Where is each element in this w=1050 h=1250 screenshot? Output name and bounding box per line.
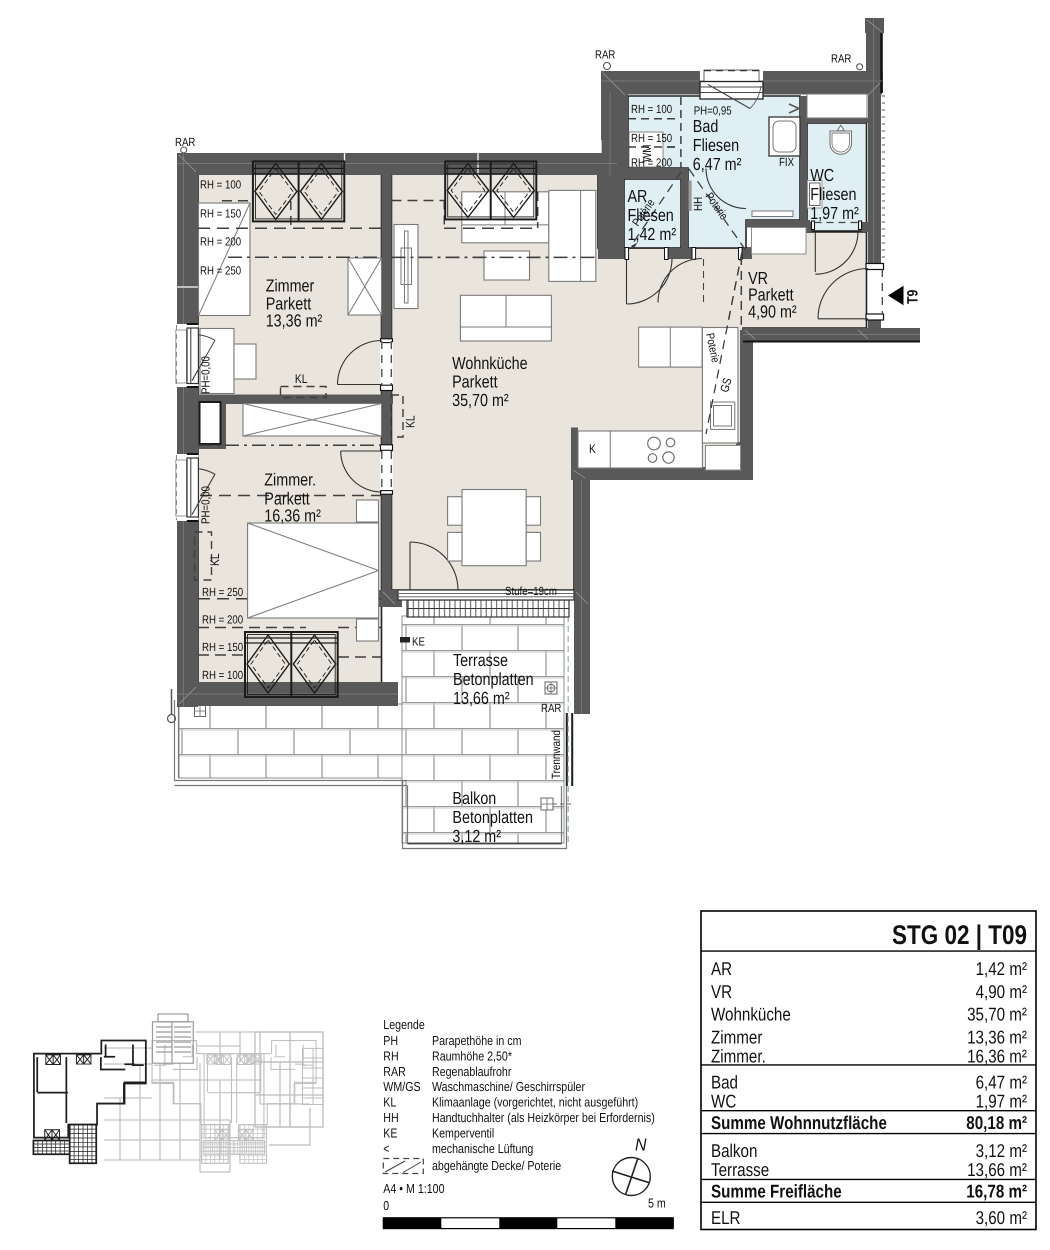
svg-text:VR: VR: [711, 981, 732, 1002]
svg-text:Wohnküche: Wohnküche: [711, 1004, 791, 1025]
svg-text:RH = 200: RH = 200: [200, 235, 241, 249]
svg-text:PH=0,00: PH=0,00: [199, 486, 213, 524]
svg-text:abgehängte Decke/ Poterie: abgehängte Decke/ Poterie: [432, 1158, 561, 1173]
svg-text:AR: AR: [711, 958, 732, 979]
svg-text:16,36 m²: 16,36 m²: [967, 1046, 1027, 1067]
svg-text:Waschmaschine/ Geschirrspüler: Waschmaschine/ Geschirrspüler: [432, 1079, 586, 1094]
svg-text:ELR: ELR: [711, 1207, 741, 1228]
svg-text:4,90 m²: 4,90 m²: [976, 981, 1027, 1002]
svg-text:80,18 m²: 80,18 m²: [966, 1112, 1027, 1133]
svg-text:RH = 250: RH = 250: [202, 585, 243, 599]
svg-text:RH = 200: RH = 200: [202, 613, 243, 627]
svg-text:Balkon: Balkon: [452, 788, 496, 808]
svg-text:PH=0,00: PH=0,00: [199, 356, 213, 394]
svg-text:13,66 m²: 13,66 m²: [453, 688, 510, 708]
svg-text:KL: KL: [383, 1095, 396, 1110]
svg-text:HH: HH: [691, 197, 705, 211]
svg-text:Zimmer: Zimmer: [711, 1026, 762, 1047]
svg-text:Balkon: Balkon: [711, 1140, 757, 1161]
svg-text:13,36 m²: 13,36 m²: [266, 311, 323, 331]
svg-text:Fliesen: Fliesen: [693, 135, 739, 155]
svg-text:RAR: RAR: [831, 52, 851, 66]
svg-text:Betonplatten: Betonplatten: [453, 669, 534, 689]
svg-text:Terrasse: Terrasse: [711, 1159, 769, 1180]
svg-text:K: K: [589, 442, 596, 456]
svg-text:RH: RH: [383, 1048, 398, 1063]
svg-text:Bad: Bad: [711, 1072, 738, 1093]
svg-text:Zimmer.: Zimmer.: [711, 1046, 766, 1067]
svg-text:6,47 m²: 6,47 m²: [976, 1072, 1027, 1093]
svg-text:RAR: RAR: [595, 48, 615, 62]
svg-text:Zimmer.: Zimmer.: [264, 470, 316, 490]
svg-text:6,47 m²: 6,47 m²: [693, 154, 742, 174]
svg-text:RH = 100: RH = 100: [631, 102, 672, 116]
svg-text:RH = 100: RH = 100: [200, 178, 241, 192]
svg-text:WC: WC: [711, 1091, 736, 1112]
svg-text:Klimaanlage (vorgerichtet, nic: Klimaanlage (vorgerichtet, nicht ausgefü…: [432, 1095, 638, 1110]
svg-text:Kemperventil: Kemperventil: [432, 1125, 494, 1140]
svg-text:Parkett: Parkett: [452, 372, 498, 392]
svg-text:Stufe=19cm: Stufe=19cm: [505, 584, 557, 598]
svg-text:16,36 m²: 16,36 m²: [264, 506, 321, 526]
svg-text:WM: WM: [640, 145, 654, 163]
svg-text:PH: PH: [383, 1033, 398, 1048]
svg-text:WC: WC: [810, 165, 834, 185]
svg-text:KL: KL: [295, 372, 308, 386]
svg-text:<: <: [383, 1141, 389, 1156]
svg-text:RH = 150: RH = 150: [200, 207, 241, 221]
svg-text:A4 • M 1:100: A4 • M 1:100: [383, 1181, 444, 1196]
svg-text:T9: T9: [905, 290, 922, 304]
svg-text:Bad: Bad: [693, 116, 719, 136]
svg-text:RH = 100: RH = 100: [202, 668, 243, 682]
svg-text:Summe Wohnnutzfläche: Summe Wohnnutzfläche: [711, 1112, 887, 1133]
svg-text:Parapethöhe in cm: Parapethöhe in cm: [432, 1033, 522, 1048]
svg-text:3,12 m²: 3,12 m²: [976, 1140, 1027, 1161]
svg-text:3,60 m²: 3,60 m²: [976, 1207, 1027, 1228]
svg-text:WM/GS: WM/GS: [383, 1079, 421, 1094]
svg-text:13,36 m²: 13,36 m²: [967, 1026, 1027, 1047]
svg-text:RH = 250: RH = 250: [200, 264, 241, 278]
svg-text:35,70 m²: 35,70 m²: [967, 1004, 1027, 1025]
svg-text:KL: KL: [404, 415, 418, 428]
svg-text:Betonplatten: Betonplatten: [452, 807, 533, 827]
svg-text:1,42 m²: 1,42 m²: [628, 224, 677, 244]
svg-text:N: N: [635, 1135, 647, 1155]
svg-text:1,42 m²: 1,42 m²: [976, 958, 1027, 979]
svg-text:Wohnküche: Wohnküche: [452, 353, 527, 373]
svg-text:1,97 m²: 1,97 m²: [810, 203, 859, 223]
svg-text:RAR: RAR: [383, 1064, 406, 1079]
svg-text:Raumhöhe 2,50*: Raumhöhe 2,50*: [432, 1048, 512, 1063]
svg-text:KE: KE: [383, 1125, 397, 1140]
svg-text:35,70 m²: 35,70 m²: [452, 390, 509, 410]
svg-text:RH = 150: RH = 150: [202, 640, 243, 654]
svg-text:5 m: 5 m: [648, 1196, 666, 1211]
svg-text:RH = 150: RH = 150: [631, 131, 672, 145]
svg-text:Terrasse: Terrasse: [453, 650, 508, 670]
svg-text:Regenablaufrohr: Regenablaufrohr: [432, 1064, 512, 1079]
svg-text:mechanische Lüftung: mechanische Lüftung: [432, 1141, 533, 1156]
svg-text:STG 02 | T09: STG 02 | T09: [892, 920, 1027, 950]
svg-text:16,78 m²: 16,78 m²: [966, 1181, 1027, 1202]
svg-text:KL: KL: [208, 553, 222, 566]
svg-text:Trennwand: Trennwand: [549, 730, 563, 779]
svg-text:3,12 m²: 3,12 m²: [452, 826, 501, 846]
svg-text:4,90 m²: 4,90 m²: [748, 302, 797, 322]
svg-text:KE: KE: [412, 635, 425, 649]
svg-text:HH: HH: [383, 1110, 398, 1125]
svg-text:0: 0: [383, 1198, 389, 1213]
svg-text:1,97 m²: 1,97 m²: [976, 1091, 1027, 1112]
svg-text:Summe Freifläche: Summe Freifläche: [711, 1181, 842, 1202]
svg-text:Legende: Legende: [383, 1017, 425, 1032]
svg-text:PH=0,95: PH=0,95: [694, 104, 732, 118]
svg-text:Fliesen: Fliesen: [810, 184, 856, 204]
svg-text:13,66 m²: 13,66 m²: [967, 1159, 1027, 1180]
svg-text:RAR: RAR: [541, 701, 561, 715]
svg-text:FIX: FIX: [779, 155, 794, 169]
svg-text:Handtuchhalter (als Heizkörper: Handtuchhalter (als Heizkörper bei Erfor…: [432, 1110, 655, 1125]
